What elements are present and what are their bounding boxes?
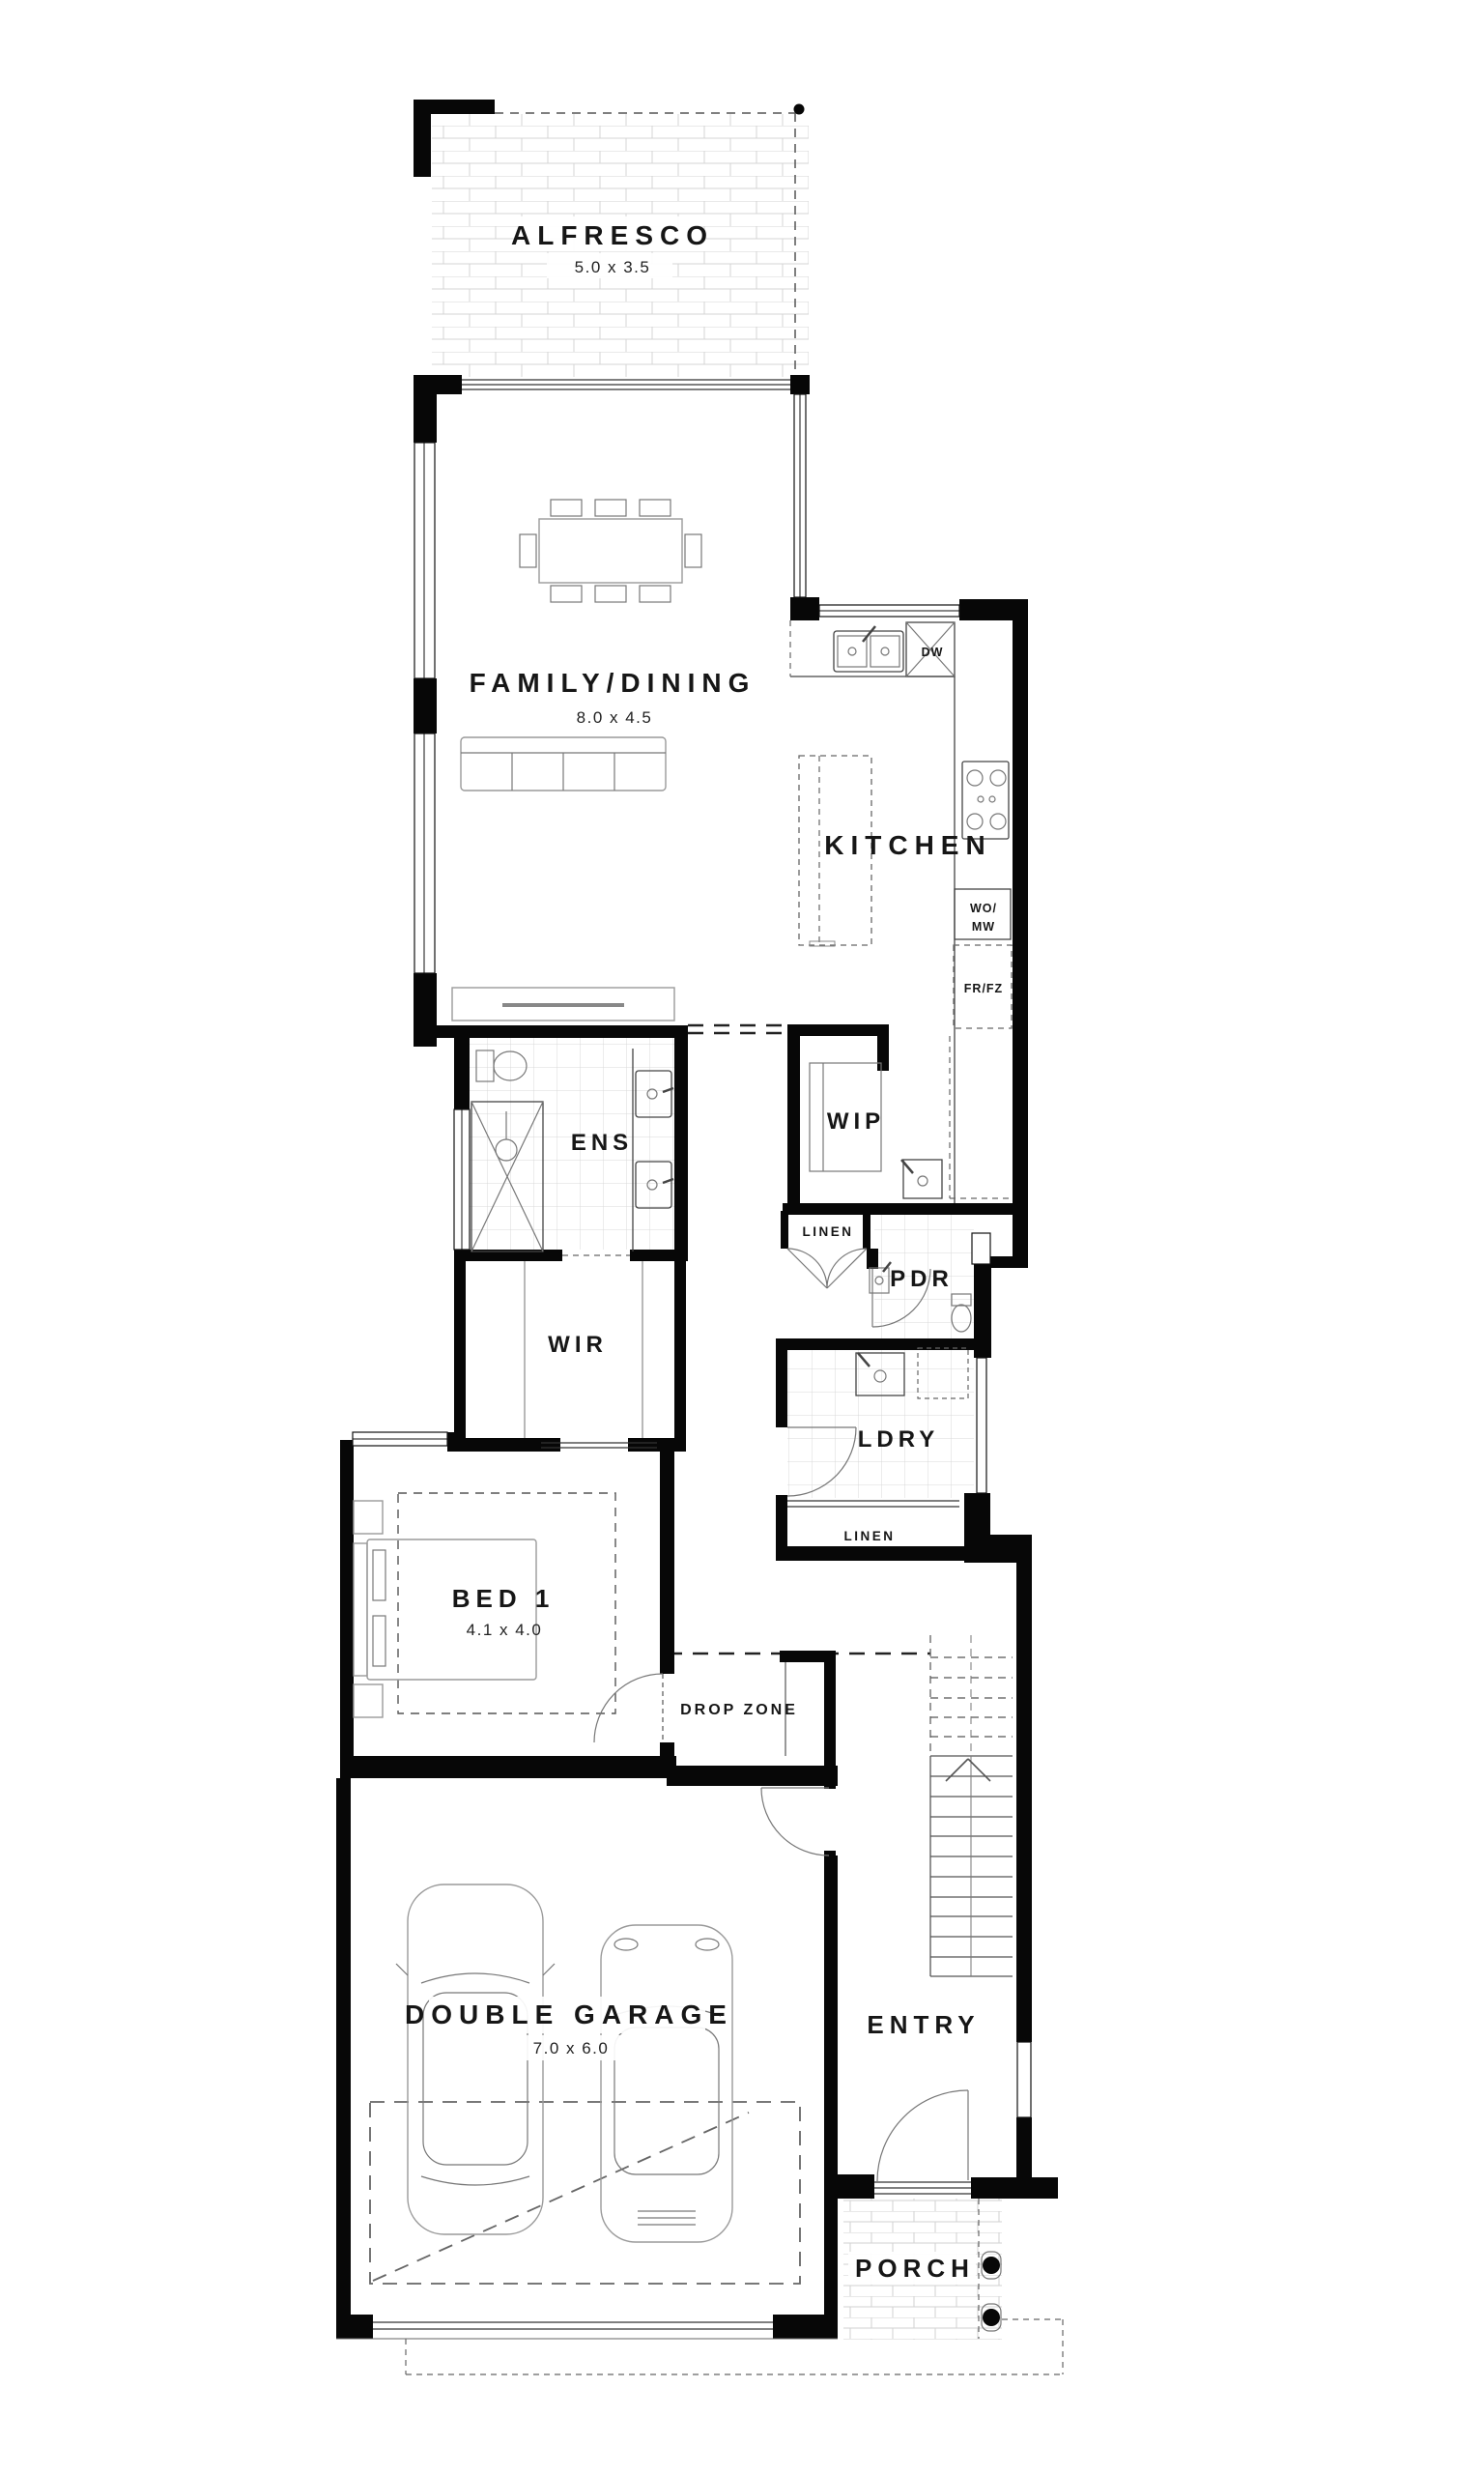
- label-dishwasher: DW: [922, 646, 944, 659]
- room-label-drop-zone: DROP ZONE: [680, 1702, 798, 1718]
- label-microwave: MW: [972, 920, 995, 934]
- floor-plan: ALFRESCO 5.0 x 3.5 FAMILY/DINING 8.0 x 4…: [0, 0, 1484, 2474]
- floor-plan-page: ALFRESCO 5.0 x 3.5 FAMILY/DINING 8.0 x 4…: [0, 0, 1484, 2474]
- bedside-table: [354, 1501, 383, 1534]
- sofa: [461, 737, 666, 791]
- room-label-bed1: BED 1: [452, 1584, 556, 1613]
- porch-pillar: [983, 2257, 1000, 2274]
- room-label-wip: WIP: [827, 1108, 885, 1135]
- room-label-wir: WIR: [548, 1332, 608, 1358]
- label-wall-oven: WO/: [970, 902, 997, 915]
- room-label-entry: ENTRY: [867, 2010, 980, 2039]
- garage-diagonal-dashed: [373, 2113, 749, 2281]
- room-label-family-dining: FAMILY/DINING: [470, 668, 756, 698]
- tv-unit: [452, 988, 674, 1021]
- room-label-kitchen: KITCHEN: [824, 830, 991, 860]
- garage-apron-dashed: [370, 2102, 800, 2284]
- ldry-floor: [787, 1350, 974, 1498]
- front-door: [877, 2090, 968, 2181]
- linen-hall-doors: [787, 1249, 867, 1288]
- dining-table: [520, 500, 701, 602]
- room-dim-family-dining: 8.0 x 4.5: [577, 708, 653, 727]
- ldry-window: [977, 1358, 986, 1493]
- family-fitout: [452, 500, 701, 1021]
- room-label-garage: DOUBLE GARAGE: [405, 1999, 733, 2029]
- room-dim-garage: 7.0 x 6.0: [533, 2039, 610, 2057]
- room-label-ens: ENS: [571, 1130, 633, 1156]
- stairs-up-arrow: [946, 1759, 968, 1781]
- room-dim-bed1: 4.1 x 4.0: [467, 1621, 543, 1639]
- garage-internal-door: [761, 1788, 829, 1855]
- room-label-linen-hall: LINEN: [803, 1224, 854, 1239]
- garage-fitout: [396, 1884, 732, 2242]
- bed-headboard: [354, 1543, 367, 1676]
- room-label-ldry: LDRY: [858, 1426, 939, 1453]
- room-label-alfresco: ALFRESCO: [511, 220, 714, 250]
- hinged-doors: [761, 1783, 968, 2181]
- room-dim-alfresco: 5.0 x 3.5: [575, 258, 651, 276]
- stairs: [930, 1635, 1013, 1976]
- bedside-table: [354, 1684, 383, 1717]
- room-label-linen-ldry: LINEN: [844, 1529, 896, 1543]
- pdr-window: [972, 1233, 990, 1264]
- car: [601, 1925, 732, 2242]
- alfresco-post: [794, 104, 805, 115]
- sink-tap: [863, 626, 875, 642]
- porch-pillar: [983, 2309, 1000, 2326]
- entry-window: [1017, 2042, 1031, 2117]
- wip-sink: [903, 1160, 942, 1198]
- room-label-porch: PORCH: [855, 2254, 975, 2283]
- label-fridge-freezer: FR/FZ: [964, 982, 1003, 995]
- bed1-door: [594, 1674, 663, 1742]
- room-label-pdr: PDR: [890, 1266, 954, 1292]
- kitchen-sink: [834, 631, 903, 672]
